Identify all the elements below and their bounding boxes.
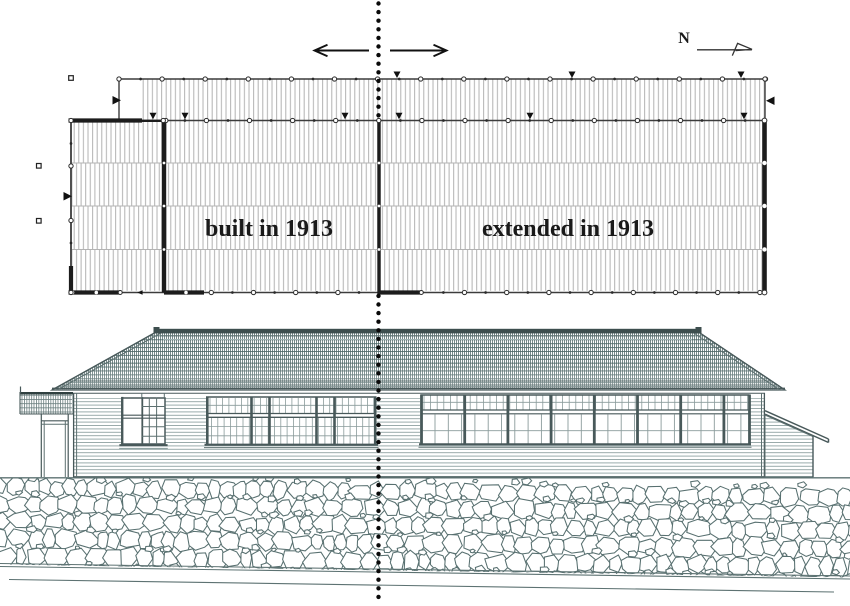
svg-text:built in 1913: built in 1913: [205, 216, 333, 242]
svg-text:N: N: [678, 30, 690, 47]
svg-text:extended in 1913: extended in 1913: [482, 216, 654, 242]
